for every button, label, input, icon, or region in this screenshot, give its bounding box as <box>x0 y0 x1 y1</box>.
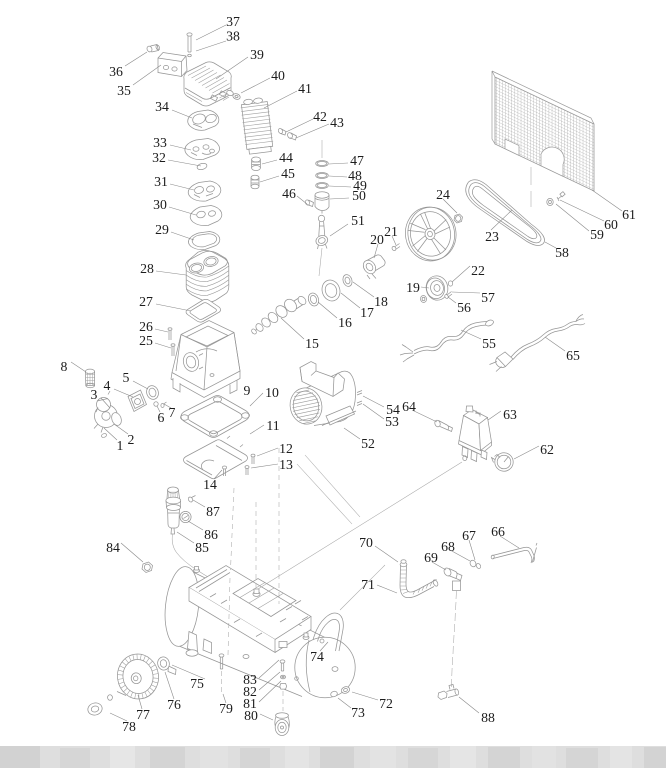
svg-text:71: 71 <box>361 577 375 592</box>
svg-text:74: 74 <box>310 649 324 664</box>
svg-text:33: 33 <box>153 135 167 150</box>
svg-text:54: 54 <box>386 402 400 417</box>
svg-text:32: 32 <box>152 150 166 165</box>
svg-text:17: 17 <box>360 305 374 320</box>
svg-text:64: 64 <box>402 399 416 414</box>
svg-text:25: 25 <box>139 333 153 348</box>
svg-text:30: 30 <box>153 197 167 212</box>
svg-text:41: 41 <box>298 81 312 96</box>
svg-text:26: 26 <box>139 319 153 334</box>
svg-text:72: 72 <box>379 696 393 711</box>
svg-text:60: 60 <box>604 217 618 232</box>
svg-text:4: 4 <box>104 378 111 393</box>
svg-text:56: 56 <box>457 300 471 315</box>
svg-text:6: 6 <box>158 410 165 425</box>
svg-text:11: 11 <box>266 418 279 433</box>
svg-text:19: 19 <box>406 280 420 295</box>
svg-text:13: 13 <box>279 457 293 472</box>
svg-text:85: 85 <box>195 540 209 555</box>
svg-text:62: 62 <box>540 442 554 457</box>
svg-text:61: 61 <box>622 207 636 222</box>
svg-text:31: 31 <box>154 174 168 189</box>
svg-text:87: 87 <box>206 504 220 519</box>
svg-text:42: 42 <box>313 109 327 124</box>
svg-text:21: 21 <box>384 224 398 239</box>
svg-text:46: 46 <box>282 186 296 201</box>
svg-text:39: 39 <box>250 47 264 62</box>
svg-text:27: 27 <box>139 294 153 309</box>
svg-text:8: 8 <box>61 359 68 374</box>
svg-text:28: 28 <box>140 261 154 276</box>
svg-text:18: 18 <box>374 294 388 309</box>
svg-text:86: 86 <box>204 527 218 542</box>
svg-text:35: 35 <box>117 83 131 98</box>
svg-text:75: 75 <box>190 676 204 691</box>
svg-text:76: 76 <box>167 697 181 712</box>
svg-text:7: 7 <box>169 405 176 420</box>
svg-text:16: 16 <box>338 315 352 330</box>
svg-text:15: 15 <box>305 336 319 351</box>
svg-text:52: 52 <box>361 436 375 451</box>
svg-text:67: 67 <box>462 528 476 543</box>
svg-text:14: 14 <box>203 477 217 492</box>
svg-text:1: 1 <box>117 438 124 453</box>
svg-text:23: 23 <box>485 229 499 244</box>
svg-text:22: 22 <box>471 263 485 278</box>
svg-text:45: 45 <box>281 166 295 181</box>
svg-text:78: 78 <box>122 719 136 734</box>
svg-text:50: 50 <box>352 188 366 203</box>
svg-text:84: 84 <box>106 540 120 555</box>
svg-text:2: 2 <box>128 432 135 447</box>
svg-text:65: 65 <box>566 348 580 363</box>
svg-text:3: 3 <box>91 387 98 402</box>
svg-text:70: 70 <box>359 535 373 550</box>
svg-text:34: 34 <box>155 99 169 114</box>
svg-text:68: 68 <box>441 539 455 554</box>
svg-text:59: 59 <box>590 227 604 242</box>
svg-text:40: 40 <box>271 68 285 83</box>
svg-text:47: 47 <box>350 153 364 168</box>
svg-text:63: 63 <box>503 407 517 422</box>
svg-text:9: 9 <box>244 383 251 398</box>
svg-text:10: 10 <box>265 385 279 400</box>
svg-text:83: 83 <box>243 672 257 687</box>
svg-text:55: 55 <box>482 336 496 351</box>
svg-text:44: 44 <box>279 150 293 165</box>
svg-text:69: 69 <box>424 550 438 565</box>
svg-text:58: 58 <box>555 245 569 260</box>
svg-text:88: 88 <box>481 710 495 725</box>
svg-text:20: 20 <box>370 232 384 247</box>
svg-text:29: 29 <box>155 222 169 237</box>
svg-text:37: 37 <box>226 14 240 29</box>
svg-text:12: 12 <box>279 441 293 456</box>
svg-text:73: 73 <box>351 705 365 720</box>
svg-text:24: 24 <box>436 187 450 202</box>
svg-text:77: 77 <box>136 707 150 722</box>
svg-text:43: 43 <box>330 115 344 130</box>
svg-text:66: 66 <box>491 524 505 539</box>
svg-text:36: 36 <box>109 64 123 79</box>
svg-text:79: 79 <box>219 701 233 716</box>
svg-text:38: 38 <box>226 28 240 43</box>
svg-text:5: 5 <box>123 370 130 385</box>
svg-text:51: 51 <box>351 213 365 228</box>
svg-text:57: 57 <box>481 290 495 305</box>
